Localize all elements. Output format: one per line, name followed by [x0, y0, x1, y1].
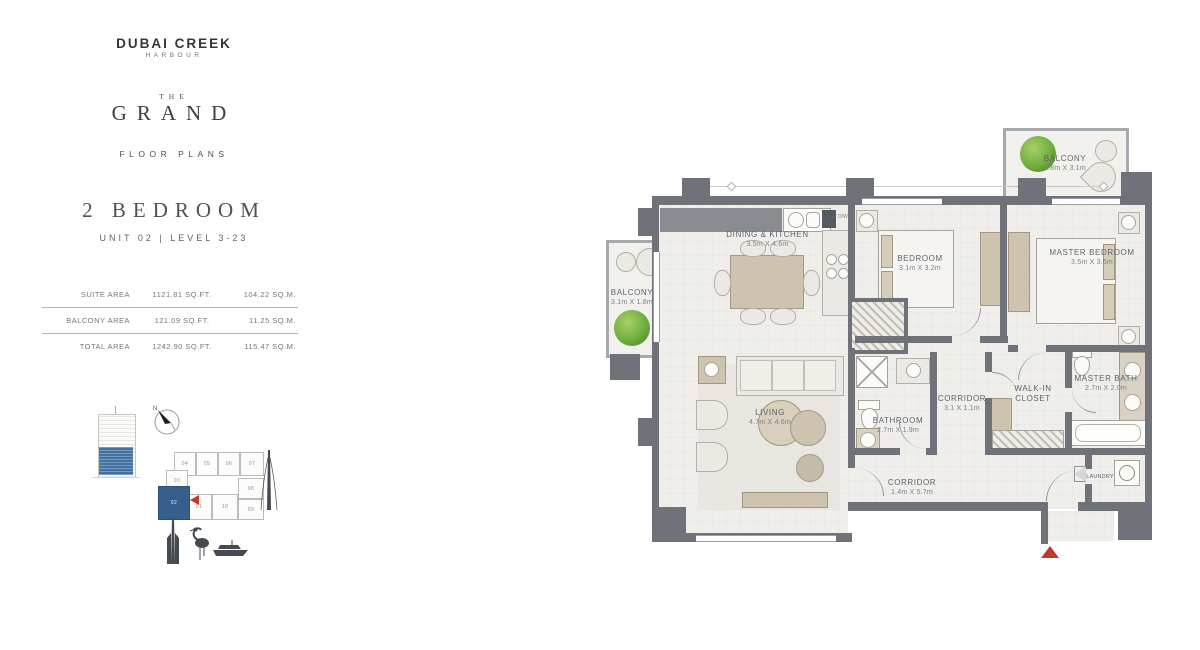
room-label-corridor2: CORRIDOR1.4m X 5.7m	[862, 478, 962, 498]
page-title: 2 BEDROOM	[0, 198, 348, 223]
room-label-masterbath: MASTER BATH2.7m X 2.0m	[1060, 374, 1152, 394]
dining-chair	[714, 270, 731, 296]
washbasin	[906, 363, 921, 378]
unit-subtitle: UNIT 02 | LEVEL 3-23	[0, 233, 348, 243]
column	[846, 178, 874, 196]
entrance-marker-icon	[1041, 546, 1059, 558]
tv-console	[742, 492, 828, 508]
tower-antenna	[115, 406, 116, 414]
burj-khalifa-icon	[164, 518, 182, 564]
shower	[856, 356, 888, 388]
tower-baseline	[92, 477, 140, 478]
sofa-cushion	[740, 360, 772, 391]
balcony-table	[616, 252, 636, 272]
keyplan-unit-06: 06	[218, 452, 240, 476]
area-label: TOTAL AREA	[42, 342, 136, 351]
floorplan-brochure-page: DUBAI CREEK HARBOUR THE GRAND FLOOR PLAN…	[0, 0, 1200, 650]
room-label-bathroom: BATHROOM2.7m X 1.9m	[858, 416, 938, 436]
area-sqft: 1242.90 SQ.FT.	[136, 342, 228, 351]
armchair	[696, 442, 728, 472]
keyplan-unit-05: 05	[196, 452, 218, 476]
yacht-icon	[212, 540, 250, 558]
window	[696, 535, 836, 542]
area-sqm: 11.25 SQ.M.	[228, 316, 298, 325]
wall	[1085, 484, 1092, 502]
column	[652, 507, 686, 541]
window	[1052, 198, 1120, 205]
column	[610, 354, 640, 380]
wall	[848, 202, 855, 302]
column	[1118, 502, 1152, 540]
wall	[848, 502, 1048, 511]
north-label: N	[153, 406, 157, 412]
dining-chair	[770, 308, 796, 325]
table-row: SUITE AREA 1121.81 SQ.FT. 104.22 SQ.M.	[42, 282, 298, 308]
room-label-bedroom: BEDROOM3.1m X 3.2m	[870, 254, 970, 274]
room-label-laundry: LAUNDRY	[1082, 474, 1118, 481]
wardrobe	[1008, 232, 1030, 312]
area-table: SUITE AREA 1121.81 SQ.FT. 104.22 SQ.M. B…	[42, 282, 298, 359]
room-label-master: MASTER BEDROOM3.5m X 3.6m	[1048, 248, 1136, 268]
column	[682, 178, 710, 196]
wall	[855, 336, 952, 343]
wall	[985, 352, 992, 372]
wall	[1085, 455, 1092, 469]
room-label-dining: DINING & KITCHEN3.5m X 4.6m	[695, 230, 840, 250]
lamp	[859, 213, 874, 228]
area-label: SUITE AREA	[42, 290, 136, 299]
hall-closet	[848, 298, 908, 354]
table-row: TOTAL AREA 1242.90 SQ.FT. 115.47 SQ.M.	[42, 334, 298, 359]
sofa-cushion	[772, 360, 804, 391]
sofa-cushion	[804, 360, 836, 391]
dishwasher	[822, 210, 836, 228]
window	[862, 198, 942, 205]
dining-table	[730, 255, 804, 309]
wall	[652, 196, 659, 542]
room-label-walkin: WALK-IN CLOSET	[996, 384, 1070, 404]
kitchen-counter-dark	[660, 208, 782, 232]
dining-chair	[803, 270, 820, 296]
area-sqft: 121.09 SQ.FT.	[136, 316, 228, 325]
section-label: FLOOR PLANS	[0, 149, 348, 159]
compass-icon: N	[148, 402, 184, 438]
dishwasher-label: D/W	[838, 214, 848, 220]
wardrobe	[980, 232, 1002, 306]
project-logo-the: THE	[0, 92, 348, 101]
area-sqm: 104.22 SQ.M.	[228, 290, 298, 299]
area-sqft: 1121.81 SQ.FT.	[136, 290, 228, 299]
stove-burner	[826, 268, 837, 279]
sink-bowl	[806, 212, 820, 228]
stove-burner	[826, 254, 837, 265]
area-label: BALCONY AREA	[42, 316, 136, 325]
floor-plan: D/W	[600, 112, 1156, 560]
wall	[855, 448, 900, 455]
wall	[1041, 511, 1048, 544]
dimension-tick	[727, 182, 737, 192]
wall	[1008, 345, 1018, 352]
room-label-balcony-tr: BALCONY1.8m X 3.1m	[1005, 154, 1125, 174]
pouf	[796, 454, 824, 482]
lamp	[1121, 215, 1136, 230]
keyplan-arrow-icon	[190, 495, 199, 505]
table-lamp	[704, 362, 719, 377]
plant-icon	[614, 310, 650, 346]
sink-bowl	[788, 212, 804, 228]
column	[1121, 172, 1152, 205]
column	[638, 208, 652, 236]
wall	[1046, 345, 1152, 352]
wall	[1145, 196, 1152, 511]
room-label-corridor1: CORRIDOR3.1 X 1.1m	[918, 394, 1006, 414]
wall	[1000, 202, 1007, 343]
wall	[926, 448, 937, 455]
washbasin	[1124, 394, 1141, 411]
wall	[1065, 412, 1072, 455]
dining-chair	[740, 308, 766, 325]
table-row: BALCONY AREA 121.09 SQ.FT. 11.25 SQ.M.	[42, 308, 298, 334]
keyplan-unit-10: 10	[212, 494, 238, 520]
column	[1018, 178, 1046, 196]
entry-floor	[1048, 511, 1114, 541]
developer-logo-name: DUBAI CREEK	[0, 36, 348, 51]
pillow	[1103, 284, 1115, 320]
wall	[848, 348, 855, 468]
area-sqm: 115.47 SQ.M.	[228, 342, 298, 351]
lamp	[1121, 329, 1136, 344]
flamingo-icon	[188, 526, 214, 562]
room-label-balcony-l: BALCONY3.1m X 1.8m	[606, 288, 658, 308]
room-label-living: LIVING4.7m X 4.6m	[720, 408, 820, 428]
project-logo-name: GRAND	[0, 101, 348, 126]
creek-tower-icon	[258, 450, 280, 510]
column	[638, 418, 652, 446]
bathtub-inner	[1075, 424, 1141, 442]
keyplan-unit-02-highlighted: 02	[158, 486, 190, 520]
washer-drum	[1119, 465, 1135, 481]
tower-highlight-floors	[99, 447, 133, 475]
developer-logo-sub: HARBOUR	[0, 52, 348, 59]
